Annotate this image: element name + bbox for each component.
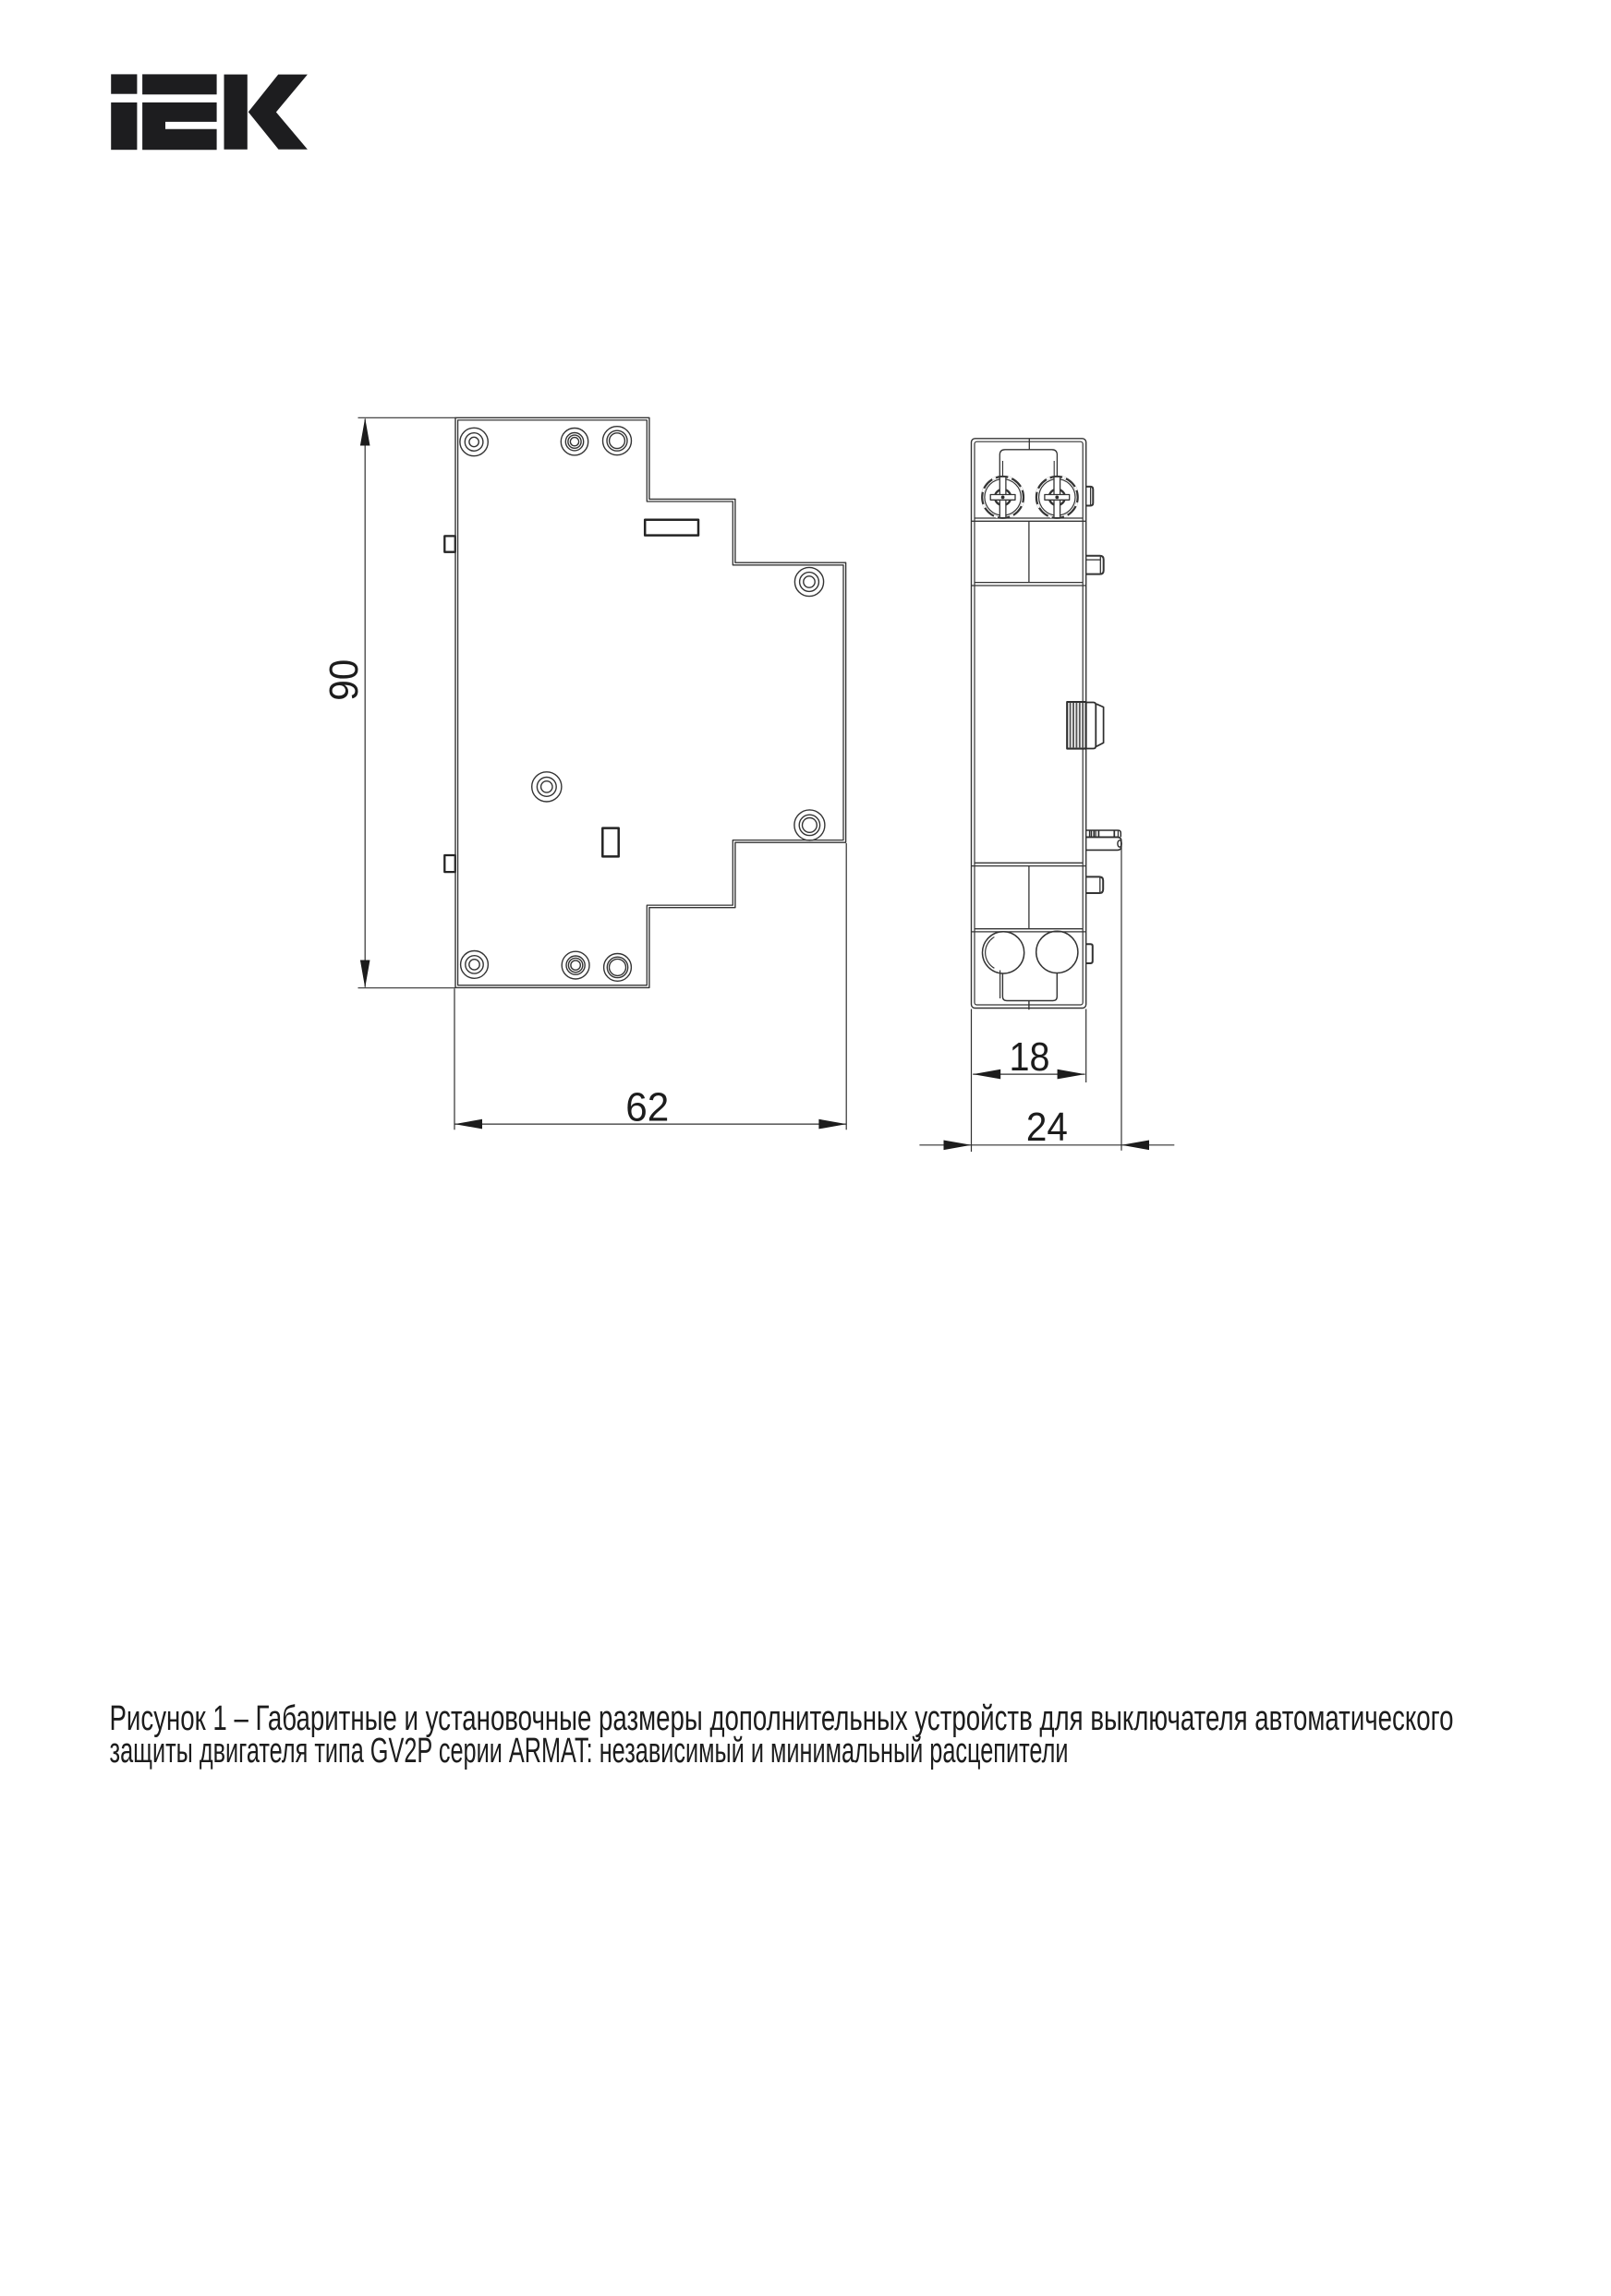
svg-text:18: 18 [1010,1035,1050,1080]
svg-text:90: 90 [322,659,367,701]
svg-text:защиты двигателя типа GV2P сер: защиты двигателя типа GV2P серии ARMAT: … [110,1732,1069,1770]
svg-text:62: 62 [625,1085,669,1130]
svg-text:24: 24 [1026,1106,1068,1150]
